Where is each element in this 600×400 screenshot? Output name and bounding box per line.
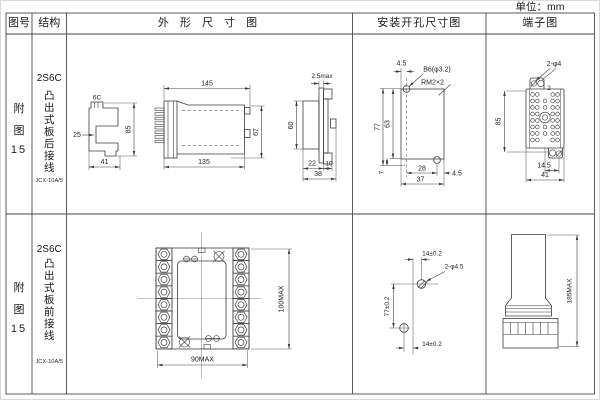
dim-label: 135: [198, 159, 210, 166]
dim-label: 185MAX: [567, 278, 574, 304]
dim-label: 41: [541, 172, 549, 179]
row1-outline-side-view: 6C 25 85 41: [73, 95, 137, 171]
header-cell-fig-no: 图号: [6, 13, 32, 34]
dim-label: 41: [101, 159, 109, 166]
dim-label: 38: [314, 171, 322, 178]
row1-fig-label: 附 图 15: [6, 100, 32, 156]
row1-outline-panel-view: 2.5max 60 22 10 38: [288, 73, 336, 182]
row1-terminal-view: 2-φ4 2 85 14.: [496, 61, 565, 183]
dim-label: 14±0.2: [422, 251, 442, 258]
terminal-screws-left: [156, 248, 172, 349]
fig-char: 附: [14, 279, 25, 295]
row2-structure-desc: 凸出式板前接线: [32, 258, 67, 350]
dim-label: 28: [418, 166, 426, 173]
mounting-screw-top-right: [214, 251, 225, 262]
header-cell-terminal: 端子图: [486, 13, 595, 34]
dim-label: 85: [496, 118, 503, 126]
dim-label: 90MAX: [191, 357, 214, 364]
dim-label: 77±0.2: [384, 296, 391, 316]
dim-label: 67: [253, 128, 260, 136]
hole-spec-label: 2-φ4.5: [444, 264, 463, 271]
slot-screws-bottom-right: [205, 336, 220, 342]
dim-label: 4.5: [397, 61, 407, 68]
dim-label: 63: [385, 120, 392, 128]
dim-label: 145: [201, 81, 213, 88]
row2-outline-view: 100MAX 90MAX: [138, 233, 293, 379]
dim-label: 22: [308, 161, 316, 168]
document-page: 6C 25 85 41: [0, 0, 600, 400]
row2-terminal-view: 185MAX: [503, 235, 580, 349]
row1-model-label: 2S6C: [32, 73, 67, 84]
row2-fig-label: 附 图 15: [6, 279, 32, 335]
dim-label: 10: [325, 161, 333, 168]
mounting-screw-bottom-left: [179, 337, 190, 348]
terminal-screws-right: [233, 248, 249, 349]
row1-submodel-label: JCX-10A/5: [33, 178, 66, 184]
row2-model-label: 2S6C: [32, 244, 67, 255]
terminal-holes: [531, 93, 560, 142]
dim-label: 60: [288, 122, 295, 130]
fig-number: 15: [11, 144, 27, 156]
fig-number: 15: [11, 323, 27, 335]
dim-label: 14.5: [537, 163, 551, 170]
row1-structure-desc: 凸出式板后接线: [32, 90, 67, 180]
unit-label: 单位：mm: [486, 1, 594, 13]
hole-spec-label: 2-φ4: [547, 61, 562, 68]
header-cell-install: 安装开孔尺寸图: [353, 13, 487, 34]
dim-label: 85: [126, 126, 133, 134]
fig-char: 图: [14, 122, 25, 138]
table-grid: [6, 13, 595, 394]
drawing-canvas: 6C 25 85 41: [1, 1, 600, 400]
dim-label: 14±0.2: [422, 341, 442, 348]
dim-label: 6C: [93, 95, 102, 102]
dim-label: 37: [417, 177, 425, 184]
socket-terminal-ticks: [511, 323, 549, 335]
header-cell-structure: 结构: [32, 13, 67, 34]
thread-spec-label: RM2×2: [421, 80, 444, 87]
hole-spec-label: B6(φ3.2): [423, 67, 451, 74]
dim-label: 77: [375, 123, 382, 131]
row1-install-view: 4.5 B6(φ3.2) RM2×2 77 63 7 28 37: [375, 61, 462, 187]
dim-label: 25: [73, 132, 81, 139]
fig-char: 附: [14, 100, 25, 116]
dim-label: 100MAX: [279, 285, 286, 312]
dim-label: 4.5: [452, 171, 462, 178]
fig-char: 图: [14, 301, 25, 317]
connector-pins: [155, 108, 164, 143]
row1-outline-front-view: 145 67 135: [155, 81, 265, 170]
row2-install-view: 14±0.2 2-φ4.5 77±0.2 14±0.2: [384, 251, 464, 355]
header-cell-outline: 外 形 尺 寸 图: [67, 13, 353, 34]
row2-submodel-label: JCX-10A/5: [33, 359, 66, 365]
dim-label: 2.5max: [311, 73, 333, 80]
dim-label: 7: [379, 170, 386, 174]
